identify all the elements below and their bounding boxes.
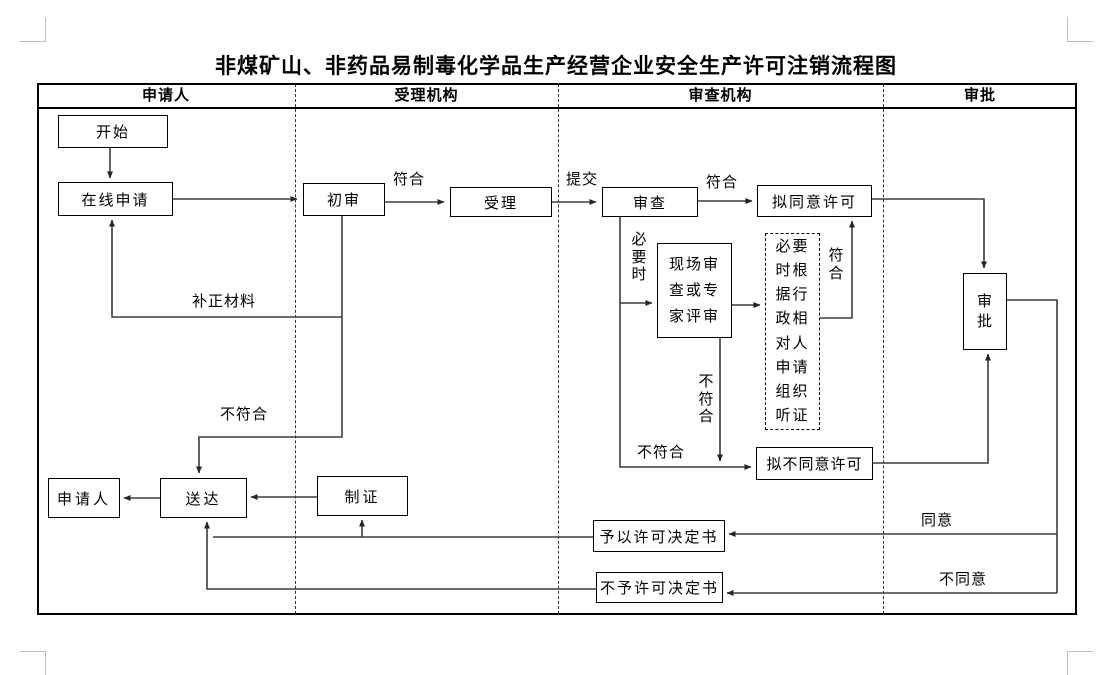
label-disagree: 不同意 — [939, 568, 987, 589]
node-applicant: 申请人 — [48, 478, 120, 518]
node-propose-reject: 拟不同意许可 — [756, 447, 873, 480]
label-not-conform-initial: 不符合 — [220, 403, 268, 424]
edge-approval-output-trunk — [1007, 300, 1057, 593]
node-online-apply: 在线申请 — [58, 182, 173, 216]
label-not-conform-review: 不符合 — [637, 441, 685, 462]
label-conform-hearing: 符合 — [828, 247, 844, 282]
label-not-conform-onsite: 不符合 — [698, 373, 714, 426]
label-conform-review: 符合 — [706, 171, 738, 192]
flowchart-page: 非煤矿山、非药品易制毒化学品生产经营企业安全生产许可注销流程图 申请人 受理机构… — [0, 0, 1112, 675]
node-onsite-review: 现场审查或专家评审 — [657, 243, 732, 338]
node-review: 审查 — [602, 187, 698, 217]
node-deny-decision: 不予许可决定书 — [596, 572, 723, 603]
node-propose-approve: 拟同意许可 — [757, 185, 872, 217]
node-start: 开始 — [58, 115, 168, 148]
node-hearing: 必要时根据行政相对人申请组织听证 — [765, 233, 820, 430]
node-grant-decision: 予以许可决定书 — [593, 520, 725, 552]
node-initial-review: 初审 — [303, 183, 385, 216]
label-submit: 提交 — [566, 168, 598, 189]
node-approval: 审批 — [963, 273, 1007, 350]
node-make-cert: 制证 — [317, 476, 408, 516]
label-conform-initial: 符合 — [393, 168, 425, 189]
node-accept: 受理 — [450, 187, 552, 217]
edge-initial-review-not-conform-to-deliver — [199, 216, 342, 473]
label-when-necessary: 必要时 — [631, 231, 647, 284]
edge-propose-reject-to-approval — [873, 354, 988, 463]
label-agree: 同意 — [921, 509, 953, 530]
node-deliver: 送达 — [160, 478, 247, 518]
edge-deny-decision-to-deliver — [207, 522, 596, 589]
edge-propose-approve-to-approval — [872, 199, 984, 268]
label-supplement-materials: 补正材料 — [192, 290, 256, 311]
